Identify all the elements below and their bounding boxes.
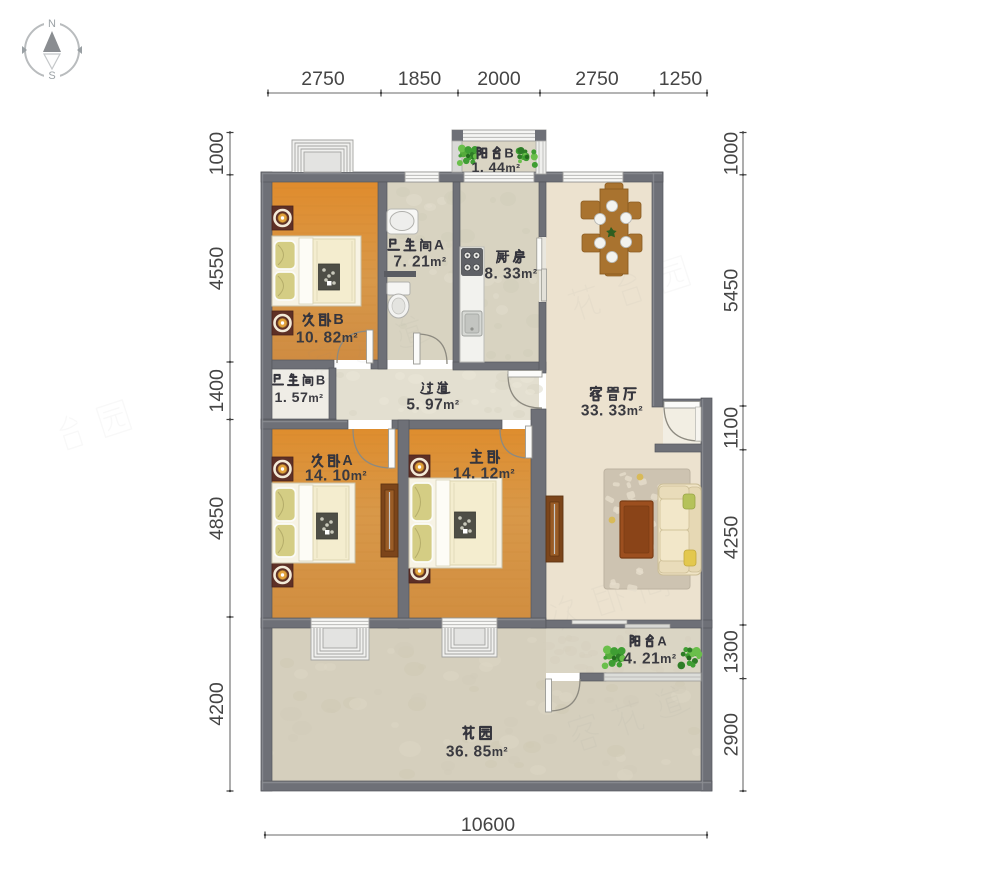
- svg-text:1300: 1300: [721, 630, 743, 674]
- svg-text:2900: 2900: [721, 713, 743, 757]
- svg-text:8. 33m²: 8. 33m²: [484, 266, 537, 283]
- svg-text:36. 85m²: 36. 85m²: [446, 744, 508, 761]
- svg-text:1250: 1250: [659, 68, 703, 90]
- svg-text:A: A: [434, 238, 444, 253]
- svg-text:B: B: [333, 312, 343, 328]
- svg-text:10. 82m²: 10. 82m²: [296, 330, 358, 347]
- svg-text:1400: 1400: [206, 369, 228, 413]
- svg-text:1. 44m²: 1. 44m²: [472, 160, 521, 176]
- svg-text:33. 33m²: 33. 33m²: [581, 403, 643, 420]
- svg-text:14. 12m²: 14. 12m²: [453, 466, 515, 483]
- svg-text:A: A: [657, 634, 666, 649]
- svg-text:14. 10m²: 14. 10m²: [305, 468, 367, 485]
- svg-text:5450: 5450: [721, 269, 743, 313]
- svg-text:1100: 1100: [721, 407, 743, 449]
- svg-text:B: B: [316, 373, 325, 388]
- svg-text:4. 21m²: 4. 21m²: [623, 651, 676, 668]
- svg-text:2750: 2750: [301, 68, 345, 90]
- svg-text:S: S: [48, 70, 55, 82]
- svg-text:4550: 4550: [206, 247, 228, 291]
- svg-text:B: B: [504, 146, 513, 161]
- svg-text:10600: 10600: [461, 814, 515, 836]
- svg-text:2000: 2000: [477, 68, 521, 90]
- svg-text:7. 21m²: 7. 21m²: [393, 254, 446, 271]
- svg-text:1850: 1850: [398, 68, 442, 90]
- svg-text:1000: 1000: [206, 132, 228, 176]
- svg-text:4850: 4850: [206, 497, 228, 541]
- svg-text:4250: 4250: [721, 516, 743, 560]
- svg-text:1000: 1000: [721, 132, 743, 176]
- svg-text:2750: 2750: [575, 68, 619, 90]
- svg-text:N: N: [48, 18, 56, 30]
- svg-text:5. 97m²: 5. 97m²: [406, 397, 459, 414]
- svg-text:1. 57m²: 1. 57m²: [275, 390, 324, 406]
- svg-text:4200: 4200: [206, 682, 228, 726]
